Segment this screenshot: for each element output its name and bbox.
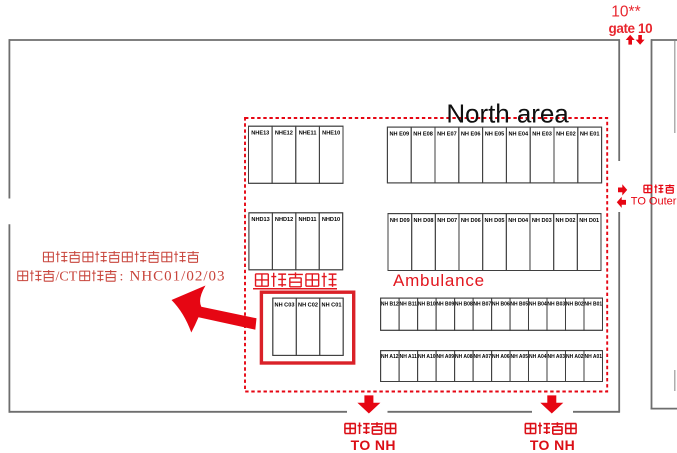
svg-text:NHE10: NHE10 [322, 131, 340, 137]
svg-text:NH D01: NH D01 [579, 218, 599, 224]
svg-text:NH B05: NH B05 [510, 302, 528, 308]
svg-text:NH A08: NH A08 [455, 354, 473, 360]
svg-text:NH E02: NH E02 [556, 131, 576, 137]
svg-text:NH A02: NH A02 [566, 354, 584, 360]
svg-text:NH E05: NH E05 [485, 131, 505, 137]
svg-text:NH D08: NH D08 [414, 218, 434, 224]
svg-text:NH D03: NH D03 [532, 218, 552, 224]
svg-text:NH B08: NH B08 [455, 302, 473, 308]
svg-text:gate 10: gate 10 [609, 21, 653, 36]
svg-text:NH A03: NH A03 [547, 354, 565, 360]
svg-text:10**: 10** [611, 4, 640, 21]
svg-text:NH A04: NH A04 [529, 354, 547, 360]
svg-text:NH A07: NH A07 [473, 354, 491, 360]
svg-text:NHD13: NHD13 [251, 217, 269, 223]
svg-text:NHE11: NHE11 [299, 131, 317, 137]
svg-text:NH B02: NH B02 [566, 302, 584, 308]
svg-text:NH E07: NH E07 [437, 131, 457, 137]
svg-text::: : [120, 269, 124, 284]
svg-text:NH A11: NH A11 [400, 354, 418, 360]
svg-text:NH A06: NH A06 [492, 354, 510, 360]
svg-text:NH B06: NH B06 [492, 302, 510, 308]
svg-text:NH D07: NH D07 [437, 218, 457, 224]
svg-text:NH E03: NH E03 [532, 131, 552, 137]
svg-text:NH C01: NH C01 [322, 302, 342, 308]
svg-text:/CT: /CT [56, 269, 78, 284]
svg-text:NH C03: NH C03 [275, 302, 295, 308]
svg-text:NH E06: NH E06 [461, 131, 481, 137]
svg-text:NH B11: NH B11 [400, 302, 418, 308]
svg-text:TO NH: TO NH [530, 437, 575, 453]
svg-text:NH B12: NH B12 [381, 302, 399, 308]
svg-text:NHD10: NHD10 [322, 217, 340, 223]
svg-text:NH B04: NH B04 [529, 302, 547, 308]
svg-text:NH D09: NH D09 [390, 218, 410, 224]
svg-text:NH E08: NH E08 [413, 131, 433, 137]
svg-text:TO Outer: TO Outer [631, 196, 677, 208]
svg-text:NHE12: NHE12 [275, 131, 293, 137]
svg-text:TO NH: TO NH [351, 437, 396, 453]
svg-text:NH E01: NH E01 [580, 131, 600, 137]
svg-text:NH D02: NH D02 [556, 218, 576, 224]
svg-text:North area: North area [446, 98, 569, 128]
svg-text:NH B01: NH B01 [584, 302, 602, 308]
svg-text:NH C02: NH C02 [298, 302, 318, 308]
svg-text:NH E09: NH E09 [390, 131, 410, 137]
svg-text:NHD11: NHD11 [298, 217, 316, 223]
svg-text:Ambulance: Ambulance [393, 271, 485, 290]
svg-text:NH D06: NH D06 [461, 218, 481, 224]
svg-text:NH B03: NH B03 [547, 302, 565, 308]
svg-text:NH E04: NH E04 [509, 131, 529, 137]
svg-text:NH B07: NH B07 [473, 302, 491, 308]
svg-text:NH A01: NH A01 [584, 354, 602, 360]
svg-text:NH A05: NH A05 [510, 354, 528, 360]
svg-text:NH A09: NH A09 [436, 354, 454, 360]
svg-text:NHE13: NHE13 [251, 131, 269, 137]
svg-text:NH B09: NH B09 [436, 302, 454, 308]
svg-text:NH D04: NH D04 [508, 218, 529, 224]
svg-text:NH B10: NH B10 [418, 302, 436, 308]
svg-text:NH A12: NH A12 [381, 354, 399, 360]
svg-text:NH D05: NH D05 [485, 218, 505, 224]
svg-text:NH A10: NH A10 [418, 354, 436, 360]
svg-text:NHD12: NHD12 [275, 217, 293, 223]
svg-text:NHC01/02/03: NHC01/02/03 [130, 268, 226, 284]
